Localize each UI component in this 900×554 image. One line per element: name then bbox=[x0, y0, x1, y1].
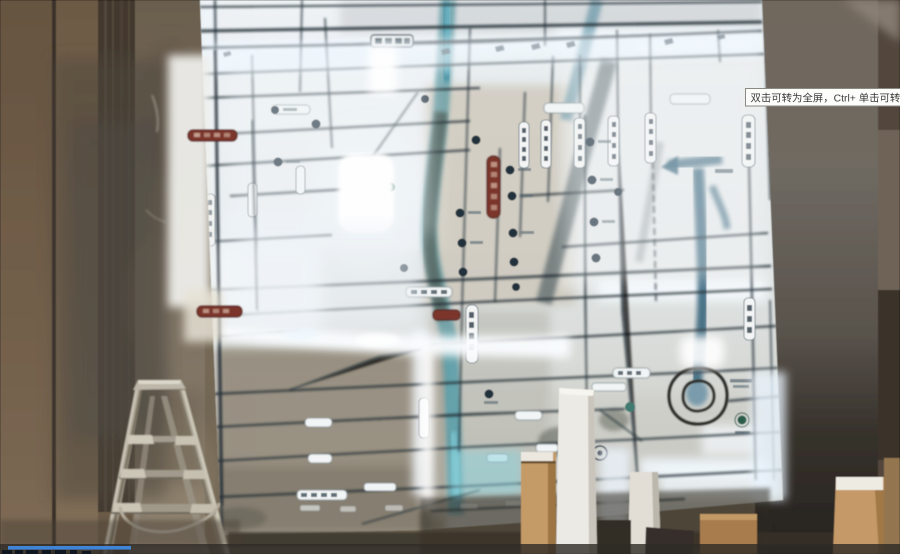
svg-text:双击可转为全屏，Ctrl+ 单击可转为全屏: 双击可转为全屏，Ctrl+ 单击可转为全屏 bbox=[751, 92, 900, 105]
